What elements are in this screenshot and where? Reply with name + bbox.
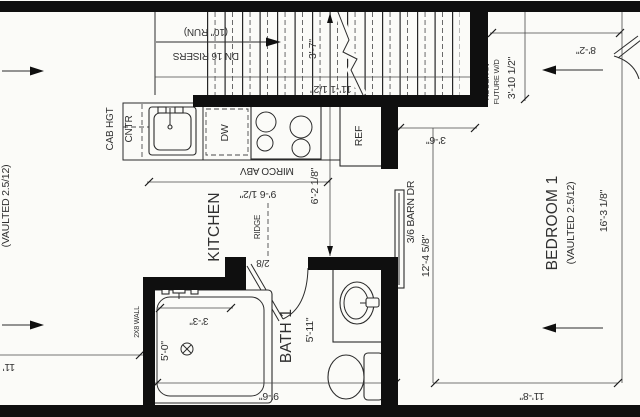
barn-door-label: 3/6 BARN DR [405,180,417,243]
hall-dim: 3'-6" [426,134,446,146]
kitchen-depth-dim: 6'-2 1/8" [309,167,321,204]
ridge-label: RIDGE [253,215,262,239]
wall-type-note: 2X8 WALL [134,306,141,338]
kitchen-area: DW REF MIRCO ABV CAB HGT CNTR KITCHEN 9'… [105,103,383,262]
sink-faucet-icon [168,125,172,129]
sink-faucet-handle-icon [158,107,166,113]
wall-bath-north-west [143,277,228,290]
laundry-area: ROUGH-IN FUTURE W/D 3'-10 1/2" 8'-2" [482,12,624,105]
bath-length-dim: 5'-11" [304,317,316,342]
wall-bath-east [381,257,398,407]
bedroom-room-label: BEDROOM 1 [544,176,561,271]
kitchen-sink-basin [154,113,191,150]
bath-width-dim: 9'-6" [259,390,279,402]
wall-bottom [0,405,640,417]
stair-treads [207,12,460,95]
laundry-depth-dim: 3'-10 1/2" [506,56,518,99]
wall-stair-bottom [193,95,488,107]
laundry-label-2: FUTURE W/D [492,59,501,105]
wall-top [0,1,640,12]
living-area: (VAULTED 2.5/12) 11' [0,165,144,373]
wall-bath-north-jog [225,257,246,290]
dishwasher-label: DW [219,124,231,141]
slope-arrow-left-icon [542,324,556,333]
bedroom-width-dim: 11'-8" [519,390,544,402]
bedroom-vault-note: (VAULTED 2.5/12) [565,182,577,265]
microwave-note: MIRCO ABV [240,165,294,176]
wall-bath-north-east [308,257,383,270]
wall-bath-west [143,277,155,407]
stair-width-dim: 3'-7" [307,39,319,59]
kitchen-room-label: KITCHEN [206,192,223,261]
tub-width-dim: 3'-3" [189,315,209,326]
counter-note-1: CAB HGT [105,107,116,150]
living-vault-note: (VAULTED 2.5/12) [0,165,12,248]
refrigerator-label: REF [353,126,365,146]
tub-length-dim: 5'-0" [159,341,171,361]
toilet-tank [364,353,383,400]
dim-arrow-down-icon [327,246,333,256]
bedroom-length-dim: 16'-3 1/8" [598,189,610,232]
wall-kitchen-east [381,107,398,169]
stair-run-dim: 11'-1 1/2" [310,83,352,95]
wall-stair-right [470,12,488,100]
slope-arrow-right-icon [30,67,44,76]
bedroom-interior-dim: 12'-4 5/8" [420,234,432,277]
laundry-width-dim: 8'-2" [576,44,596,56]
slope-arrow-right-icon [30,321,44,330]
living-partial-dim: 11' [3,361,15,373]
bath-door-size: 2/8 [256,257,270,268]
floor-plan: (10" RUN) DN 16 RISERS 11'-1 1/2" 3'-7" … [0,0,640,417]
slope-arrow-left-icon [542,66,556,75]
stair-riser-note: DN 16 RISERS [172,50,238,61]
toilet-bowl [328,355,364,399]
vanity-faucet-icon [366,298,379,307]
stair-run-note: (10" RUN) [184,26,228,37]
kitchen-width-dim: 9'-6 1/2" [239,188,276,200]
counter-note-2: CNTR [124,116,135,143]
bath-room-label: BATH 1 [278,309,295,363]
sink-faucet-handle-icon [175,107,183,113]
bedroom-door-swing-arc [614,56,639,79]
